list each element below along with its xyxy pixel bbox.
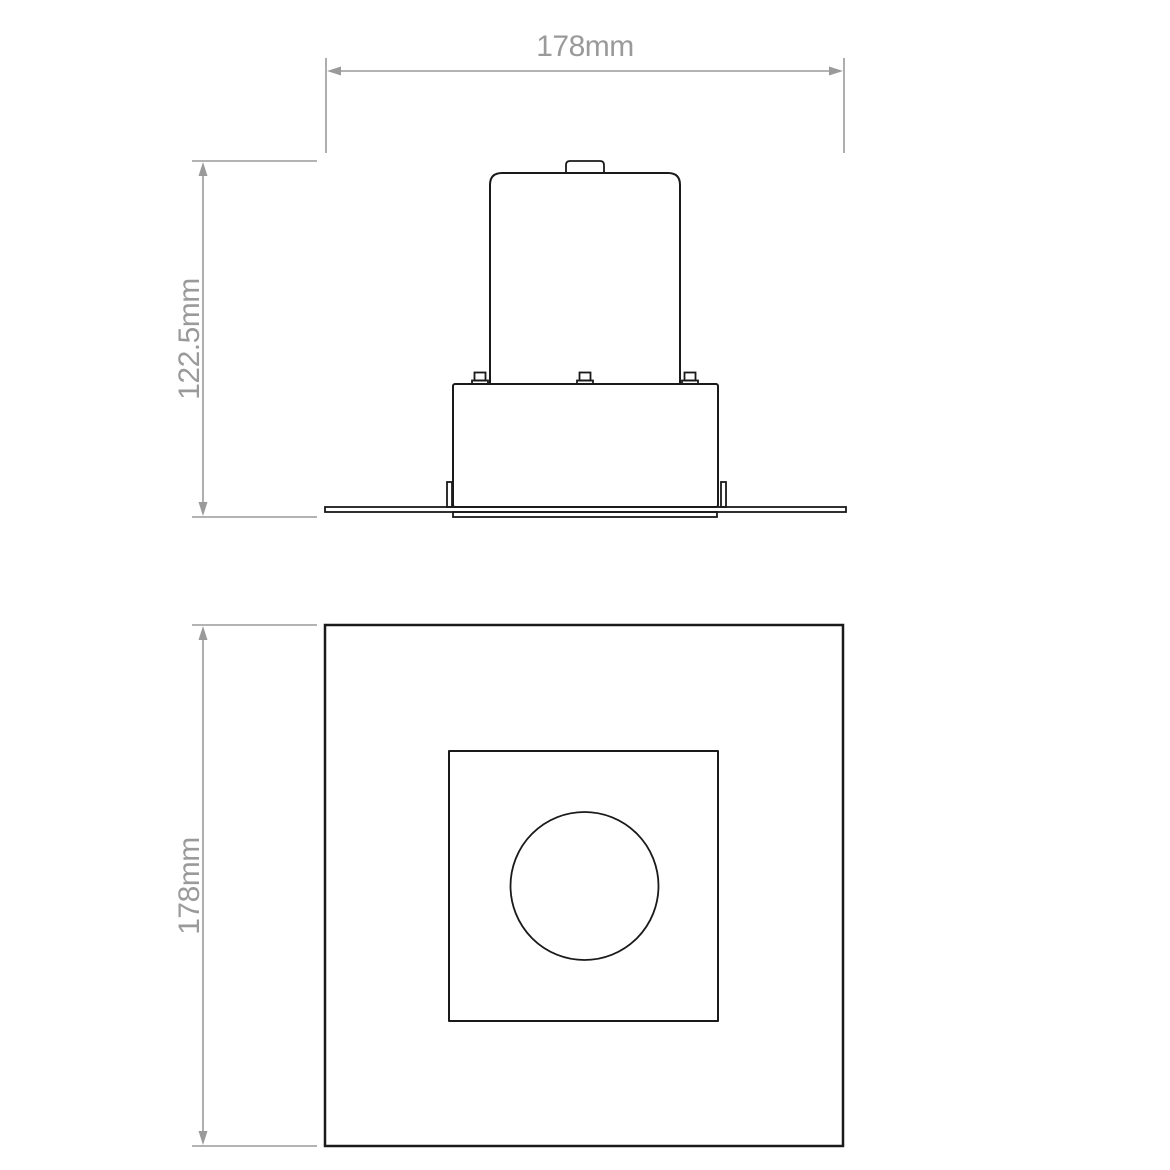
height-dim-label: 122.5mm	[173, 278, 206, 400]
technical-drawing: 178mm 122.5mm	[0, 0, 1170, 1170]
fixing-clip-left-head	[475, 373, 486, 381]
plan-dim-arrow-up	[199, 626, 208, 640]
plan-height-dimension: 178mm	[173, 625, 317, 1146]
spring-clip-right	[721, 482, 726, 507]
trim-plate-outline	[325, 625, 843, 1146]
drawing-canvas: 178mm 122.5mm	[0, 0, 1170, 1170]
plan-view: 178mm	[173, 625, 843, 1146]
fixture-plan-outline	[325, 625, 843, 1146]
fixing-clip-center	[577, 373, 593, 385]
fixing-clip-left	[472, 373, 488, 385]
inner-frame-outline	[449, 751, 718, 1021]
fixing-clip-center-head	[580, 373, 591, 381]
lamp-aperture-circle	[511, 812, 659, 960]
spring-clip-left	[447, 482, 452, 507]
recessed-can-body	[453, 384, 718, 507]
fixture-front-outline	[325, 161, 846, 517]
width-dimension: 178mm	[326, 30, 844, 153]
lamp-housing-body	[490, 173, 680, 384]
front-elevation-view: 178mm 122.5mm	[173, 30, 846, 517]
height-dim-arrow-down	[199, 502, 208, 516]
plan-dim-arrow-down	[199, 1131, 208, 1145]
width-dim-arrow-left	[327, 67, 341, 76]
width-dim-arrow-right	[829, 67, 843, 76]
plan-dim-label: 178mm	[173, 837, 206, 935]
fixing-clip-right	[682, 373, 698, 385]
height-dimension: 122.5mm	[173, 161, 317, 517]
cable-entry-tab	[566, 161, 604, 173]
width-dim-label: 178mm	[536, 30, 634, 63]
trim-bezel-lip	[453, 512, 717, 517]
height-dim-arrow-up	[199, 162, 208, 176]
fixing-clip-right-head	[685, 373, 696, 381]
